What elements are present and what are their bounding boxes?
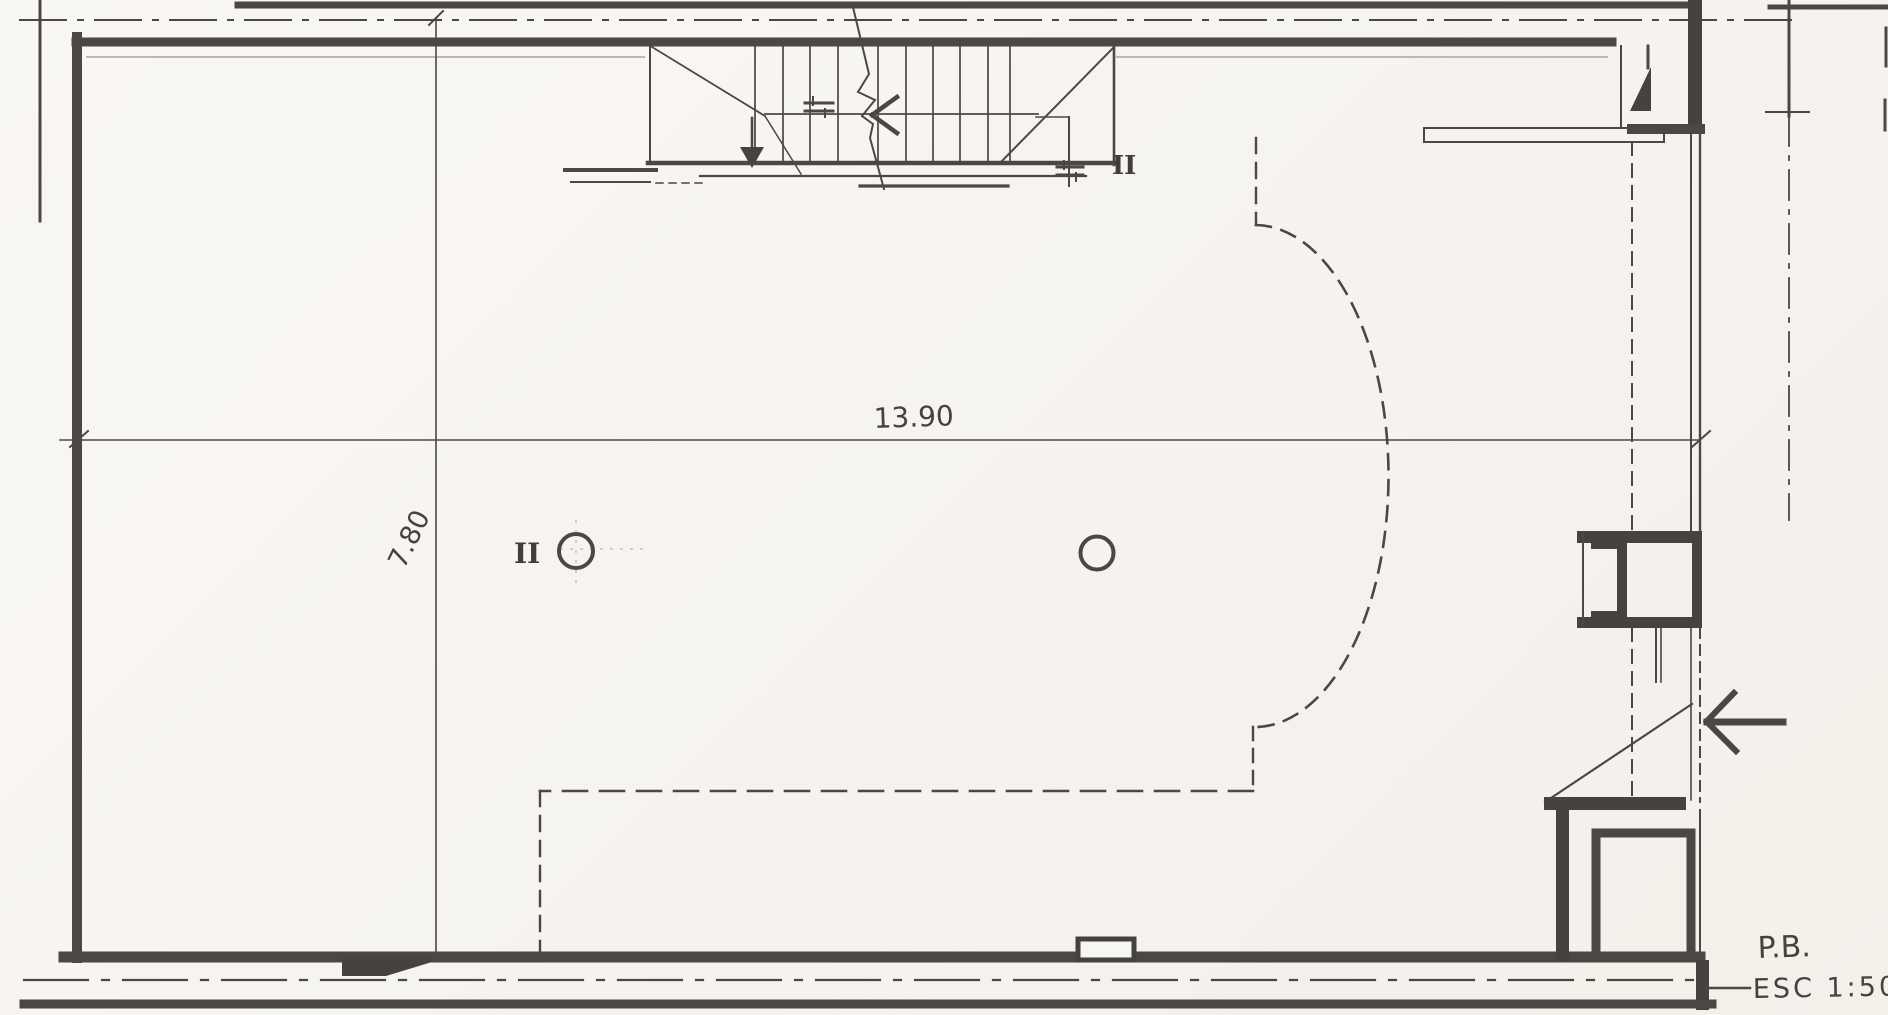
dimension-height-label: 7.80 [382, 505, 436, 573]
right-fixture [1545, 531, 1702, 802]
bottom-right-room [1544, 797, 1709, 1010]
dimension-width-label: 13.90 [873, 399, 954, 435]
bottom-wall-wedge [342, 957, 432, 976]
staircase: II [565, 3, 1136, 189]
wall-right-pier [1688, 0, 1702, 134]
top-right-entrance [1424, 46, 1664, 531]
fixture-bracket-top [1591, 539, 1621, 549]
scanned-floor-plan-sheet: II 13.90 7.80 II [0, 0, 1888, 1015]
room-wall-left [1556, 810, 1569, 962]
door-swing-diagonal [1545, 704, 1692, 802]
scale-label: ESC 1:50 [1753, 971, 1888, 1005]
stair-column-marker: II [1112, 151, 1136, 181]
entrance-arrow-icon [1707, 693, 1783, 751]
columns: II [514, 520, 1114, 584]
fixture-wall-left [1617, 537, 1627, 623]
stair-landing-diagonal [1000, 47, 1114, 163]
door-leaf [1630, 67, 1651, 111]
scan-edge-marks [1885, 28, 1886, 130]
bottom-wall-pilaster [1078, 939, 1134, 960]
partition-arc [1253, 225, 1389, 727]
stair-treads [755, 45, 1010, 163]
column-right-circle [1081, 537, 1114, 570]
title-block: P.B. ESC 1:50 [1706, 929, 1888, 1005]
room-inner-walls [1596, 833, 1691, 958]
column-left-crosshair [560, 520, 648, 584]
fixture-bracket-bottom [1591, 611, 1621, 621]
plan-title-label: P.B. [1757, 929, 1811, 966]
stair-left-arrow-icon [872, 97, 897, 133]
dim-end-ticks [70, 11, 1710, 447]
outer-walls [64, 0, 1702, 958]
lot-boundary-lines [20, 0, 1888, 520]
stair-direction-diagonal [652, 47, 765, 116]
fixture-wall-right [1692, 531, 1702, 628]
dashed-partition [540, 138, 1389, 954]
dimension-lines: 13.90 7.80 [60, 11, 1710, 956]
floor-plan-drawing: II 13.90 7.80 II [0, 0, 1888, 1015]
bottom-details [24, 939, 1712, 1004]
room-wall-top [1544, 797, 1686, 810]
column-marker-left: II [514, 537, 540, 570]
